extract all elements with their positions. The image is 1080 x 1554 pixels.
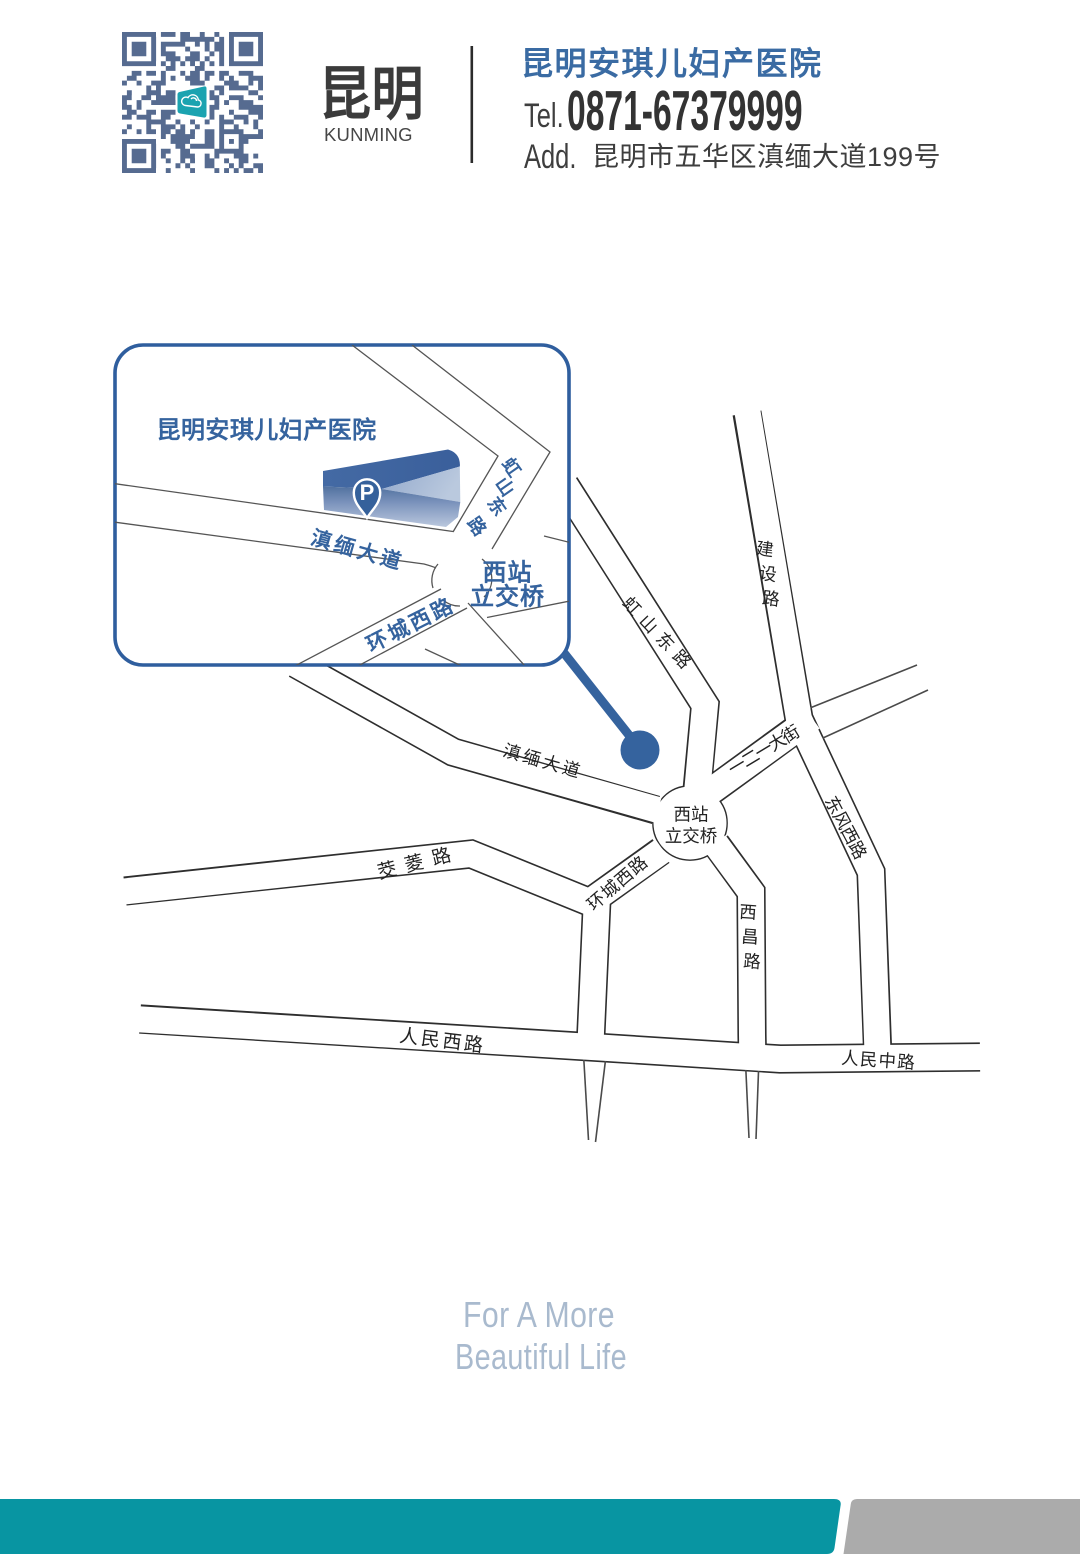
svg-text:西站: 西站 [674,805,709,825]
svg-text:建: 建 [755,538,775,560]
svg-text:民: 民 [859,1049,878,1070]
svg-text:0871-67379999: 0871-67379999 [567,79,803,142]
svg-text:民: 民 [420,1028,441,1051]
svg-text:昆明市五华区滇缅大道199号: 昆明市五华区滇缅大道199号 [592,142,941,172]
svg-text:昆明安琪儿妇产医院: 昆明安琪儿妇产医院 [157,416,377,444]
svg-text:Tel.: Tel. [524,98,564,135]
svg-text:KUNMING: KUNMING [324,124,413,145]
svg-text:立交桥: 立交桥 [470,583,545,611]
svg-text:西站: 西站 [483,560,533,587]
svg-text:昆明安琪儿妇产医院: 昆明安琪儿妇产医院 [521,46,823,82]
svg-text:昆明: 昆明 [319,61,424,126]
svg-text:西: 西 [739,902,758,923]
svg-text:设: 设 [758,563,778,585]
svg-text:Beautiful Life: Beautiful Life [455,1336,627,1377]
svg-text:西: 西 [441,1031,462,1054]
svg-text:P: P [360,480,375,505]
svg-text:昌: 昌 [741,926,760,947]
svg-text:立交桥: 立交桥 [665,826,718,846]
svg-text:For A More: For A More [463,1296,615,1336]
svg-text:路: 路 [743,951,762,972]
svg-text:路: 路 [897,1052,916,1073]
svg-text:中: 中 [878,1050,897,1071]
svg-text:Add.: Add. [524,139,576,176]
svg-text:人: 人 [398,1025,420,1049]
svg-text:人: 人 [841,1048,860,1069]
svg-text:路: 路 [463,1033,485,1057]
svg-text:路: 路 [761,588,781,610]
